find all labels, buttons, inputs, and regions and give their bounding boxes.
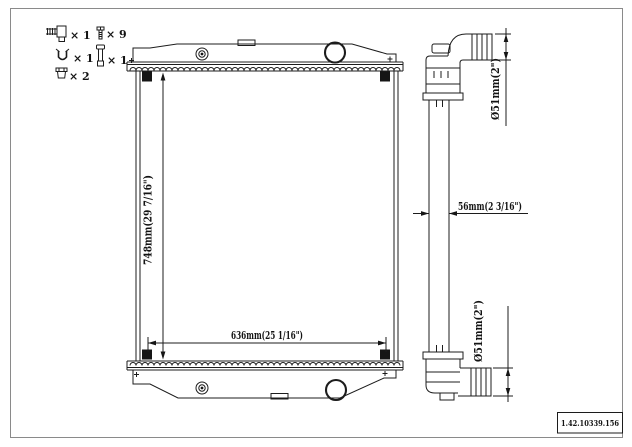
side-core bbox=[429, 100, 449, 352]
dim-label-width: 636mm(25 1/16") bbox=[231, 328, 303, 342]
side-top-flange bbox=[423, 93, 463, 100]
screw-icon bbox=[97, 27, 104, 39]
part-number-box: 1.42.10339.156 bbox=[558, 413, 623, 434]
bottom-tank bbox=[133, 370, 396, 400]
part-number: 1.42.10339.156 bbox=[561, 419, 619, 429]
top-tank bbox=[129, 40, 396, 63]
front-view: 748mm(29 7/16") 636mm(25 1/16") bbox=[127, 40, 403, 400]
hardware-legend: × 1 × 9 × 1 × 1 × 2 bbox=[46, 26, 128, 83]
pin-icon bbox=[97, 45, 105, 66]
mounting-clip-bottom-right bbox=[380, 350, 390, 360]
side-top-tank bbox=[423, 34, 492, 100]
drain-cock-icon bbox=[46, 26, 66, 42]
inlet-pipe-opening bbox=[325, 43, 345, 63]
legend-qty: × 1 bbox=[73, 52, 94, 65]
side-drain bbox=[440, 393, 454, 400]
legend-qty: × 2 bbox=[69, 70, 90, 83]
dimension-748: 748mm(29 7/16") bbox=[141, 73, 166, 360]
mounting-clip-top-left bbox=[142, 72, 152, 82]
core-side-channels bbox=[136, 71, 398, 361]
dimension-bottom-pipe: Ø51mm(2") bbox=[471, 300, 513, 402]
side-outlet-pipe bbox=[458, 368, 491, 396]
legend-qty: × 1 bbox=[107, 54, 128, 67]
crimp-edge-bottom bbox=[130, 363, 400, 366]
drawing-canvas: × 1 × 9 × 1 × 1 × 2 bbox=[0, 0, 632, 447]
dimension-636: 636mm(25 1/16") bbox=[148, 328, 386, 352]
drain-plug bbox=[196, 382, 208, 394]
side-top-cap bbox=[432, 44, 450, 53]
crimp-edge-top bbox=[130, 68, 400, 71]
dimension-top-pipe: Ø51mm(2") bbox=[488, 28, 511, 126]
side-bottom-flange bbox=[423, 352, 463, 359]
dim-label-height: 748mm(29 7/16") bbox=[141, 175, 155, 265]
side-inlet-pipe bbox=[448, 34, 492, 63]
cap-icon bbox=[56, 68, 67, 78]
dimension-56: 56mm(2 3/16") bbox=[413, 199, 528, 216]
mounting-clip-top-right bbox=[380, 72, 390, 82]
filler-neck bbox=[196, 48, 208, 60]
bottom-header bbox=[127, 361, 403, 370]
mounting-clip-bottom-left bbox=[142, 350, 152, 360]
page-border bbox=[11, 9, 623, 438]
legend-qty: × 1 bbox=[70, 29, 91, 42]
dim-label-outlet: Ø51mm(2") bbox=[471, 300, 485, 362]
dim-label-inlet: Ø51mm(2") bbox=[488, 58, 502, 120]
radiator-technical-drawing: × 1 × 9 × 1 × 1 × 2 bbox=[0, 0, 632, 447]
dim-label-depth: 56mm(2 3/16") bbox=[458, 199, 522, 213]
clip-icon bbox=[56, 49, 69, 60]
side-view: Ø51mm(2") 56mm(2 3/16") Ø51mm(2") bbox=[413, 28, 528, 402]
outlet-pipe-opening bbox=[326, 380, 346, 400]
legend-qty: × 9 bbox=[106, 28, 127, 41]
corner-screw-marks-bottom bbox=[134, 371, 388, 377]
top-tab bbox=[238, 40, 255, 46]
top-header bbox=[127, 62, 403, 71]
